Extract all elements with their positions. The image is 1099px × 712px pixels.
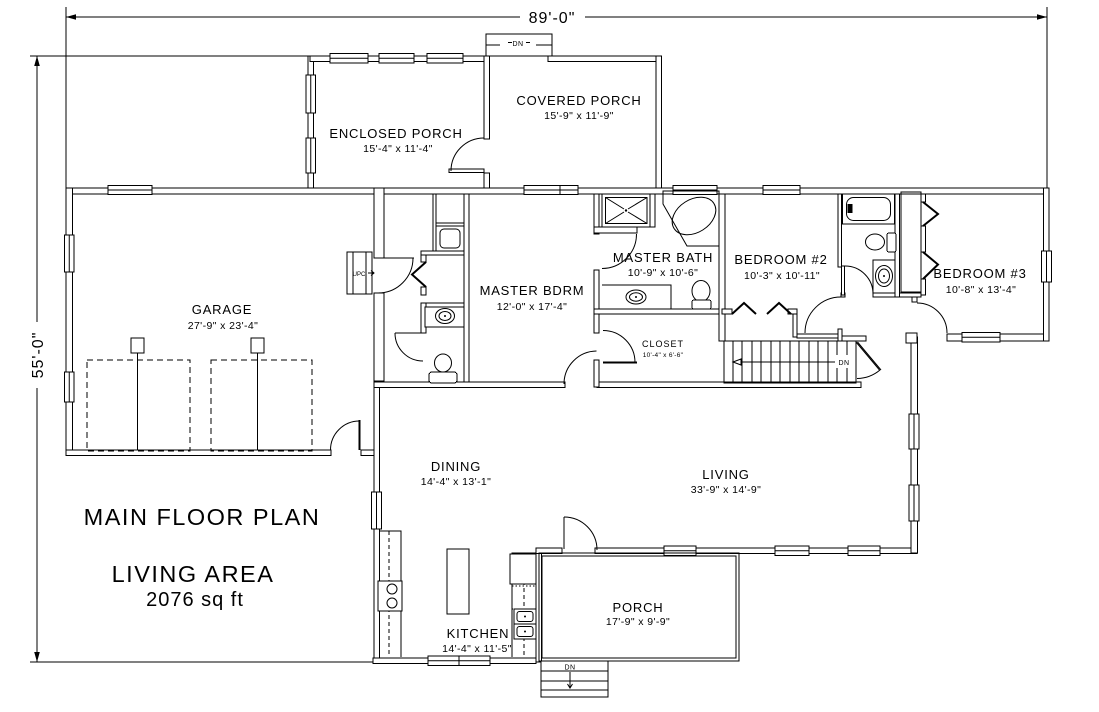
svg-text:MAIN FLOOR PLAN: MAIN FLOOR PLAN [84,504,321,530]
svg-text:15'-9" x 11'-9": 15'-9" x 11'-9" [544,110,614,122]
svg-text:BEDROOM #3: BEDROOM #3 [933,266,1026,281]
svg-text:33'-9" x 14'-9": 33'-9" x 14'-9" [691,484,762,496]
svg-text:14'-4" x 11'-5": 14'-4" x 11'-5" [442,643,512,655]
svg-text:10'-9" x 10'-6": 10'-9" x 10'-6" [628,267,699,279]
svg-text:27'-9" x 23'-4": 27'-9" x 23'-4" [188,320,259,332]
svg-text:2076 sq ft: 2076 sq ft [146,589,244,611]
svg-text:10'-8" x 13'-4": 10'-8" x 13'-4" [946,284,1017,296]
svg-text:DN: DN [564,665,575,672]
svg-text:55'-0": 55'-0" [30,332,47,379]
svg-text:ENCLOSED PORCH: ENCLOSED PORCH [329,126,462,141]
svg-text:UPC: UPC [353,272,366,278]
svg-text:DN: DN [838,360,849,367]
svg-text:10'-3" x 10'-11": 10'-3" x 10'-11" [744,270,820,282]
svg-text:12'-0" x 17'-4": 12'-0" x 17'-4" [497,301,568,313]
svg-text:LIVING AREA: LIVING AREA [112,561,275,587]
svg-text:DN: DN [512,41,523,48]
svg-text:DINING: DINING [431,459,481,474]
svg-text:KITCHEN: KITCHEN [447,626,510,641]
svg-text:17'-9" x 9'-9": 17'-9" x 9'-9" [606,616,670,628]
svg-text:CLOSET: CLOSET [642,339,684,349]
svg-text:BEDROOM #2: BEDROOM #2 [734,252,827,267]
svg-text:89'-0": 89'-0" [529,10,576,27]
svg-text:MASTER BDRM: MASTER BDRM [480,283,585,298]
svg-text:MASTER BATH: MASTER BATH [613,250,713,265]
svg-text:COVERED PORCH: COVERED PORCH [516,93,641,108]
svg-text:PORCH: PORCH [613,600,664,615]
svg-text:14'-4" x 13'-1": 14'-4" x 13'-1" [421,476,492,488]
svg-text:LIVING: LIVING [702,467,749,482]
svg-text:15'-4" x 11'-4": 15'-4" x 11'-4" [363,143,433,155]
svg-text:10'-4" x 6'-6": 10'-4" x 6'-6" [643,352,684,359]
svg-text:GARAGE: GARAGE [192,302,252,317]
